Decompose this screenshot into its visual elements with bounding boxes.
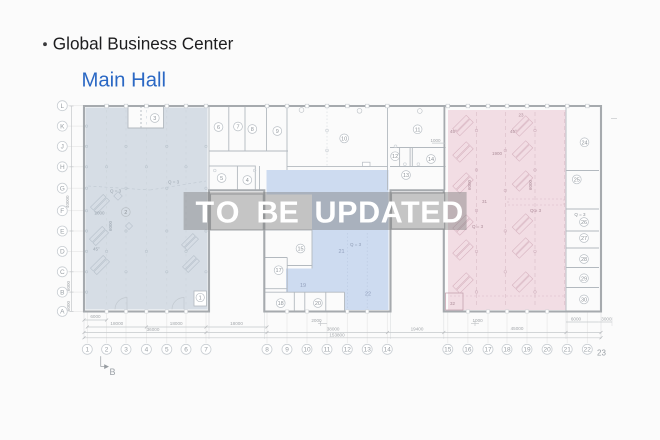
- svg-text:13: 13: [364, 347, 372, 354]
- svg-text:C: C: [60, 269, 65, 276]
- svg-text:19: 19: [300, 283, 306, 289]
- svg-text:7: 7: [204, 347, 208, 354]
- svg-text:2000: 2000: [311, 318, 322, 323]
- svg-text:18: 18: [503, 347, 511, 354]
- svg-text:45°: 45°: [93, 247, 100, 252]
- svg-text:TO: TO: [196, 196, 242, 230]
- svg-text:1000: 1000: [472, 318, 483, 323]
- svg-text:9: 9: [276, 129, 279, 135]
- svg-text:18000: 18000: [110, 321, 123, 326]
- svg-text:19: 19: [523, 347, 531, 354]
- svg-text:6000: 6000: [528, 179, 533, 190]
- svg-text:8: 8: [265, 347, 269, 354]
- svg-text:2: 2: [105, 347, 109, 354]
- svg-text:31: 31: [482, 199, 488, 204]
- svg-text:16: 16: [464, 347, 472, 354]
- svg-text:23: 23: [597, 349, 606, 358]
- svg-text:F: F: [60, 208, 64, 215]
- svg-text:38000: 38000: [327, 327, 340, 332]
- svg-text:11: 11: [324, 347, 331, 354]
- svg-text:4: 4: [145, 347, 149, 354]
- svg-text:Q = 3: Q = 3: [530, 208, 542, 213]
- svg-text:Q = 3: Q = 3: [574, 212, 586, 217]
- svg-text:G: G: [60, 186, 65, 193]
- svg-text:3: 3: [124, 347, 128, 354]
- svg-text:25: 25: [574, 177, 580, 183]
- svg-text:20: 20: [315, 301, 321, 307]
- svg-text:6000: 6000: [108, 220, 113, 231]
- svg-text:23: 23: [519, 113, 525, 118]
- svg-text:22: 22: [365, 292, 371, 298]
- svg-text:32: 32: [450, 301, 456, 306]
- svg-text:21: 21: [564, 347, 572, 354]
- svg-text:14: 14: [428, 157, 434, 163]
- svg-text:E: E: [60, 228, 65, 235]
- svg-text:36000: 36000: [147, 327, 160, 332]
- svg-text:17: 17: [276, 268, 282, 274]
- svg-text:19400: 19400: [411, 327, 424, 332]
- svg-text:1000: 1000: [430, 138, 441, 143]
- svg-text:24: 24: [581, 140, 587, 146]
- svg-text:1900: 1900: [492, 151, 503, 156]
- svg-text:8: 8: [251, 127, 254, 133]
- svg-text:Q = 3: Q = 3: [350, 242, 362, 247]
- svg-text:Q = 3: Q = 3: [472, 224, 484, 229]
- svg-text:1: 1: [85, 347, 89, 354]
- svg-text:6: 6: [217, 125, 220, 131]
- svg-text:6000: 6000: [90, 314, 101, 319]
- svg-text:H: H: [60, 164, 65, 171]
- svg-text:B: B: [110, 367, 116, 377]
- svg-text:14: 14: [384, 347, 392, 354]
- svg-text:153800: 153800: [329, 332, 345, 337]
- svg-text:Main Hall: Main Hall: [82, 69, 167, 91]
- svg-text:7: 7: [236, 125, 239, 131]
- svg-text:11: 11: [415, 127, 421, 133]
- svg-text:30: 30: [581, 297, 587, 303]
- svg-text:3: 3: [153, 116, 156, 122]
- svg-text:BE: BE: [257, 196, 299, 230]
- svg-text:6000: 6000: [571, 316, 582, 321]
- svg-text:3000: 3000: [601, 316, 612, 321]
- svg-text:45°: 45°: [510, 129, 517, 134]
- svg-text:29: 29: [581, 276, 587, 282]
- svg-text:9: 9: [285, 347, 289, 354]
- svg-text:6: 6: [184, 347, 188, 354]
- svg-text:UPDATED: UPDATED: [315, 196, 464, 230]
- svg-text:J: J: [61, 144, 64, 151]
- svg-text:12: 12: [344, 347, 352, 354]
- svg-text:5: 5: [165, 347, 169, 354]
- svg-text:Q = 3: Q = 3: [110, 189, 122, 194]
- svg-text:12: 12: [392, 154, 398, 160]
- svg-text:5: 5: [220, 176, 223, 182]
- svg-text:21: 21: [338, 249, 344, 255]
- svg-text:22: 22: [584, 347, 592, 354]
- svg-text:6000: 6000: [467, 179, 472, 190]
- svg-text:10: 10: [341, 136, 347, 142]
- svg-text:2: 2: [124, 210, 127, 216]
- svg-text:28: 28: [581, 257, 587, 263]
- svg-text:13: 13: [403, 173, 409, 179]
- svg-text:4: 4: [246, 178, 249, 184]
- svg-text:Q = 3: Q = 3: [168, 180, 180, 185]
- svg-text:26: 26: [581, 220, 587, 226]
- svg-text:40000: 40000: [65, 195, 70, 208]
- svg-text:D: D: [60, 249, 65, 256]
- svg-text:1: 1: [199, 296, 202, 302]
- svg-text:A: A: [60, 309, 65, 316]
- svg-text:18000: 18000: [230, 321, 243, 326]
- svg-text:45000: 45000: [511, 326, 524, 331]
- svg-text:2000: 2000: [95, 211, 106, 216]
- svg-text:18000: 18000: [170, 321, 183, 326]
- svg-text:27: 27: [581, 236, 587, 242]
- svg-text:20: 20: [543, 347, 551, 354]
- svg-text:15: 15: [444, 347, 452, 354]
- svg-text:17: 17: [484, 347, 492, 354]
- svg-text:K: K: [60, 123, 65, 130]
- svg-text:18: 18: [278, 301, 284, 307]
- svg-text:45°: 45°: [450, 129, 457, 134]
- svg-text:B: B: [60, 289, 64, 296]
- svg-text:Global Business Center: Global Business Center: [53, 34, 234, 54]
- svg-text:L: L: [60, 103, 64, 110]
- svg-text:10: 10: [303, 347, 311, 354]
- svg-text:15: 15: [297, 247, 303, 253]
